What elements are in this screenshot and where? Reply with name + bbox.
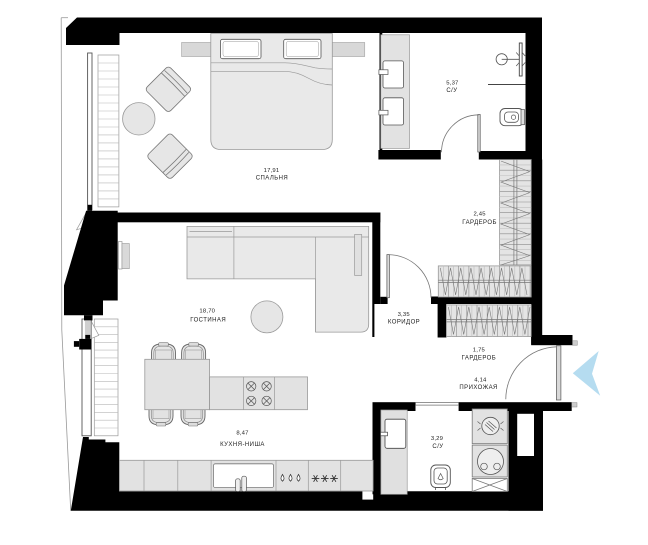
svg-text:ПРИХОЖАЯ: ПРИХОЖАЯ — [459, 385, 497, 391]
svg-text:ГАРДЕРОБ: ГАРДЕРОБ — [462, 220, 497, 226]
svg-text:2,45: 2,45 — [473, 211, 486, 217]
svg-text:3,29: 3,29 — [431, 436, 443, 442]
svg-text:ГОСТИНАЯ: ГОСТИНАЯ — [190, 317, 226, 323]
svg-text:С/У: С/У — [432, 444, 443, 450]
svg-text:17,91: 17,91 — [264, 168, 280, 174]
svg-text:8,47: 8,47 — [236, 431, 248, 437]
svg-text:5,37: 5,37 — [446, 80, 458, 86]
svg-text:18,70: 18,70 — [199, 309, 215, 315]
svg-text:С/У: С/У — [446, 88, 457, 94]
svg-text:КУХНЯ-НИША: КУХНЯ-НИША — [220, 442, 265, 448]
svg-text:СПАЛЬНЯ: СПАЛЬНЯ — [256, 176, 288, 182]
svg-text:3,35: 3,35 — [398, 312, 411, 318]
svg-text:1,75: 1,75 — [473, 347, 486, 353]
svg-text:ГАРДЕРОБ: ГАРДЕРОБ — [462, 355, 497, 361]
svg-text:КОРИДОР: КОРИДОР — [388, 320, 420, 326]
svg-text:4,14: 4,14 — [474, 378, 487, 384]
